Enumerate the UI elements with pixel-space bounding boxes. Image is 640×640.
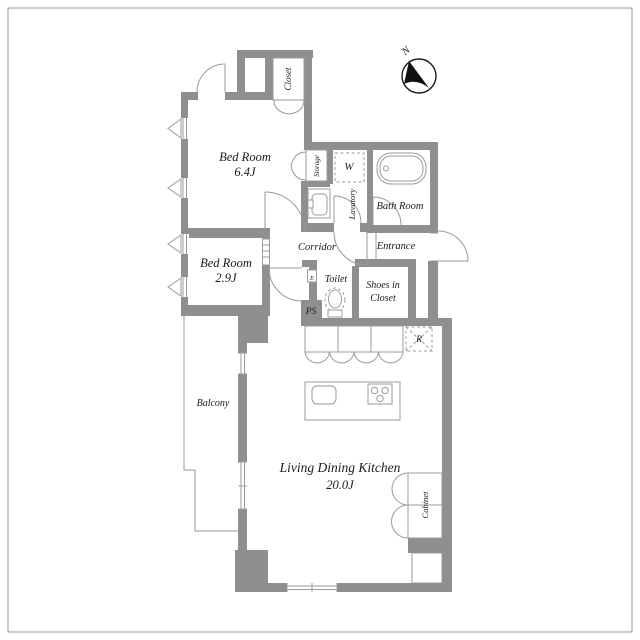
bedroom2-label: Bed Room <box>200 256 252 270</box>
storage-label: Storage <box>313 155 321 177</box>
storage-bifold-door-icon <box>291 152 306 180</box>
ldk-label: Living Dining Kitchen <box>279 460 401 475</box>
bedroom1-corridor-door-icon <box>265 192 305 232</box>
washing-machine-label: W <box>344 161 354 173</box>
ldk-size: 20.0J <box>326 478 355 492</box>
entrance-front-door-icon <box>430 231 468 261</box>
ldk-door-icon <box>268 268 302 301</box>
cabinet-unit <box>392 473 442 538</box>
bedroom1-label: Bed Room <box>219 150 271 164</box>
bathroom-label: Bath Room <box>377 201 424 212</box>
balcony-label: Balcony <box>197 398 230 409</box>
balcony-outline <box>184 316 238 531</box>
bedroom1-size: 6.4J <box>234 165 257 179</box>
walls <box>181 50 452 592</box>
shoes-closet-label-line1: Shoes in <box>366 280 400 291</box>
north-label: N <box>399 44 413 58</box>
refrigerator-label: R <box>415 335 422 345</box>
stove <box>368 384 392 404</box>
kitchen-wall-cabinets <box>305 326 403 363</box>
floor-plan: N Bed Room 6.4J Closet Storage W Lavator… <box>0 0 640 640</box>
cabinet-label: Cabinet <box>420 491 430 519</box>
bathtub <box>377 153 426 184</box>
kitchen-island <box>305 382 400 420</box>
cabinet-notch <box>412 553 442 583</box>
north-compass: N <box>399 44 436 93</box>
electrical-label: E <box>309 275 314 282</box>
corridor-label: Corridor <box>298 242 337 253</box>
toilet-fixture <box>325 288 345 317</box>
kitchen-sink <box>312 386 336 404</box>
north-arrow-icon <box>404 61 429 88</box>
lavatory-label: Lavatory <box>347 188 357 220</box>
shoes-closet-label-line2: Closet <box>370 293 396 304</box>
closet-bifold-door-icon <box>273 100 304 114</box>
closet-label: Closet <box>283 67 293 91</box>
bedroom1-entry-door-icon <box>197 64 225 92</box>
pipe-space-label: PS <box>305 307 317 317</box>
toilet-label: Toilet <box>325 274 348 285</box>
entrance-label: Entrance <box>376 241 416 252</box>
bedroom2-size: 2.9J <box>215 271 238 285</box>
lavatory-sink <box>308 189 330 218</box>
